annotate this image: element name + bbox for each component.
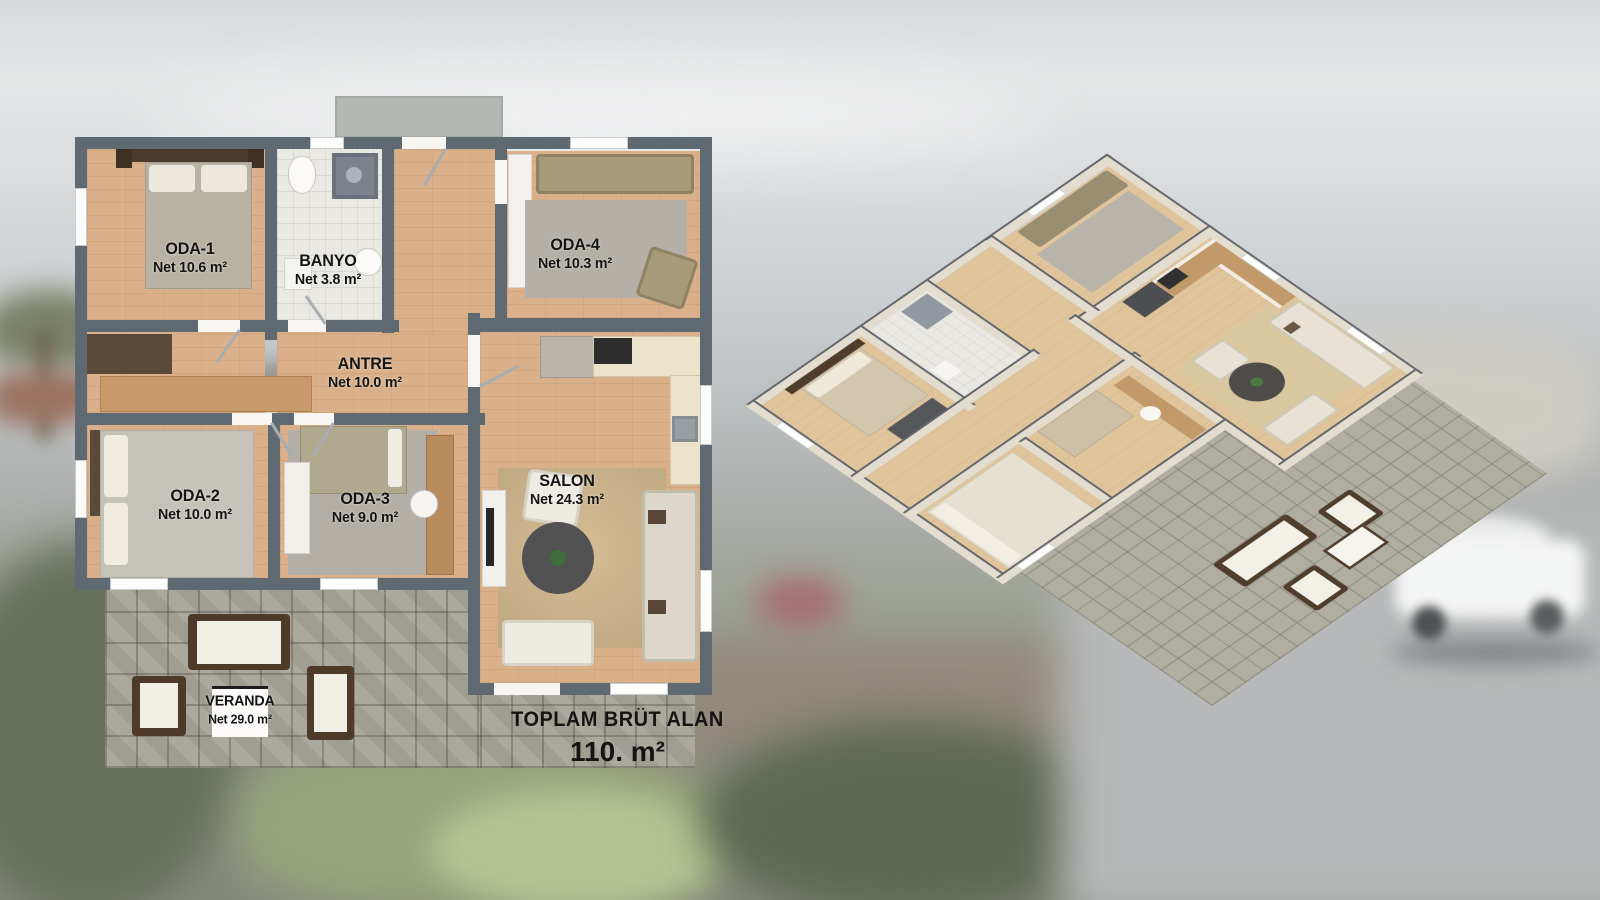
floor-plan-2d: ODA-1 Net 10.6 m² BANYO Net 3.8 m² ODA-4… — [70, 130, 730, 795]
window — [320, 578, 378, 590]
window — [570, 137, 628, 149]
flower-bed — [755, 575, 845, 630]
room-label-antre: ANTRE Net 10.0 m² — [328, 353, 402, 393]
room-area: Net 3.8 m² — [295, 271, 361, 290]
wall — [268, 425, 280, 585]
outdoor-sofa-cushion — [197, 621, 281, 664]
room-area: Net 10.6 m² — [153, 259, 227, 278]
cooktop — [594, 338, 632, 364]
kitchen-sink — [672, 416, 698, 442]
pillow — [104, 503, 128, 565]
room-name: ODA-1 — [153, 238, 227, 259]
tv — [486, 508, 494, 566]
pillow — [201, 165, 247, 192]
window — [700, 385, 712, 445]
room-label-banyo: BANYO Net 3.8 m² — [295, 250, 361, 290]
car-wheel-front — [1412, 606, 1446, 640]
car-wheel-rear — [1530, 600, 1564, 634]
terrace-door — [494, 683, 560, 695]
room-area: Net 10.0 m² — [328, 374, 402, 393]
sofa-pillow — [648, 510, 666, 524]
door-opening — [468, 335, 480, 387]
pillow — [104, 435, 128, 497]
door-opening — [198, 320, 240, 332]
toilet — [288, 156, 316, 194]
room-area: Net 29.0 m² — [205, 711, 274, 727]
outdoor-armchair-cushion — [140, 683, 178, 728]
wall — [265, 137, 277, 340]
room-label-oda4: ODA-4 Net 10.3 m² — [538, 234, 612, 274]
bright-bush — [430, 790, 730, 900]
window — [75, 460, 87, 518]
outdoor-armchair-cushion — [314, 674, 347, 732]
sofa — [536, 154, 694, 194]
window — [110, 578, 168, 590]
window — [310, 137, 344, 149]
total-area-value: 110. m² — [495, 736, 740, 768]
fridge — [540, 336, 594, 378]
room-area: Net 10.0 m² — [158, 506, 232, 525]
room-area: Net 24.3 m² — [530, 491, 604, 510]
door-opening — [294, 413, 334, 425]
room-name: ANTRE — [328, 353, 402, 374]
room-label-oda2: ODA-2 Net 10.0 m² — [158, 485, 232, 525]
dresser — [284, 462, 310, 554]
room-label-oda1: ODA-1 Net 10.6 m² — [153, 238, 227, 278]
room-area: Net 10.3 m² — [538, 255, 612, 274]
desk-chair — [410, 490, 438, 518]
room-label-veranda: VERANDA Net 29.0 m² — [205, 693, 274, 728]
pillow — [388, 429, 402, 487]
hall-corridor-floor — [394, 149, 495, 332]
door-opening — [232, 413, 272, 425]
room-label-salon: SALON Net 24.3 m² — [530, 470, 604, 510]
pillow — [149, 165, 195, 192]
wall — [75, 413, 485, 425]
shower-drain — [346, 167, 362, 183]
floor-plan-poster: ODA-1 Net 10.6 m² BANYO Net 3.8 m² ODA-4… — [0, 0, 1600, 900]
hall-closet — [87, 334, 172, 374]
room-name: VERANDA — [205, 693, 274, 712]
door-opening — [288, 320, 326, 332]
window — [700, 570, 712, 632]
room-name: ODA-2 — [158, 485, 232, 506]
entrance-door — [402, 137, 446, 149]
sofa-pillow — [648, 600, 666, 614]
wall — [382, 137, 394, 333]
room-name: ODA-4 — [538, 234, 612, 255]
door-opening — [495, 160, 507, 204]
room-name: BANYO — [295, 250, 361, 271]
total-area: TOPLAM BRÜT ALAN 110. m² — [495, 708, 740, 768]
console-cabinet — [100, 376, 312, 412]
window — [75, 188, 87, 246]
car-shadow — [1390, 640, 1600, 664]
room-name: SALON — [530, 470, 604, 491]
room-name: ODA-3 — [332, 488, 398, 509]
room-label-oda3: ODA-3 Net 9.0 m² — [332, 488, 398, 528]
plant — [550, 550, 566, 566]
room-area: Net 9.0 m² — [332, 509, 398, 528]
nightstand — [116, 148, 132, 168]
total-area-label: TOPLAM BRÜT ALAN — [501, 708, 734, 732]
chaise-bench — [502, 620, 594, 666]
window — [610, 683, 668, 695]
